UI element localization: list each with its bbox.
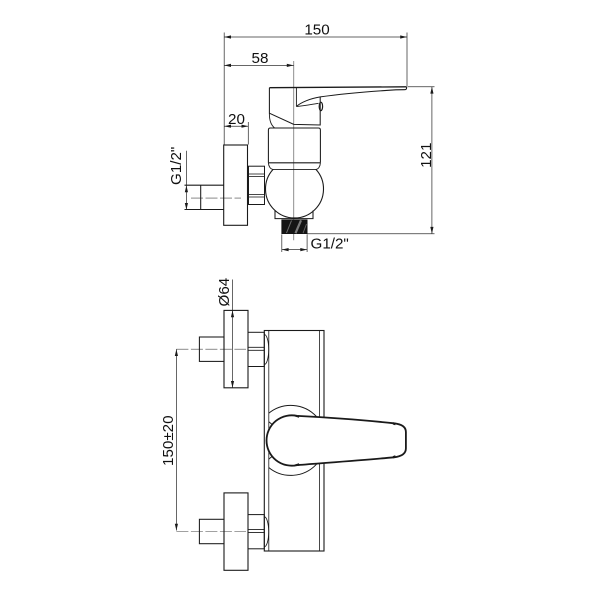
svg-text:G1/2": G1/2" xyxy=(168,147,185,185)
svg-text:58: 58 xyxy=(252,50,269,67)
svg-text:150±20: 150±20 xyxy=(160,415,177,466)
svg-text:20: 20 xyxy=(228,111,245,128)
svg-text:150: 150 xyxy=(304,21,329,38)
svg-text:121: 121 xyxy=(418,143,435,168)
svg-text:Ø64: Ø64 xyxy=(216,278,233,307)
svg-text:G1/2": G1/2" xyxy=(311,236,349,253)
